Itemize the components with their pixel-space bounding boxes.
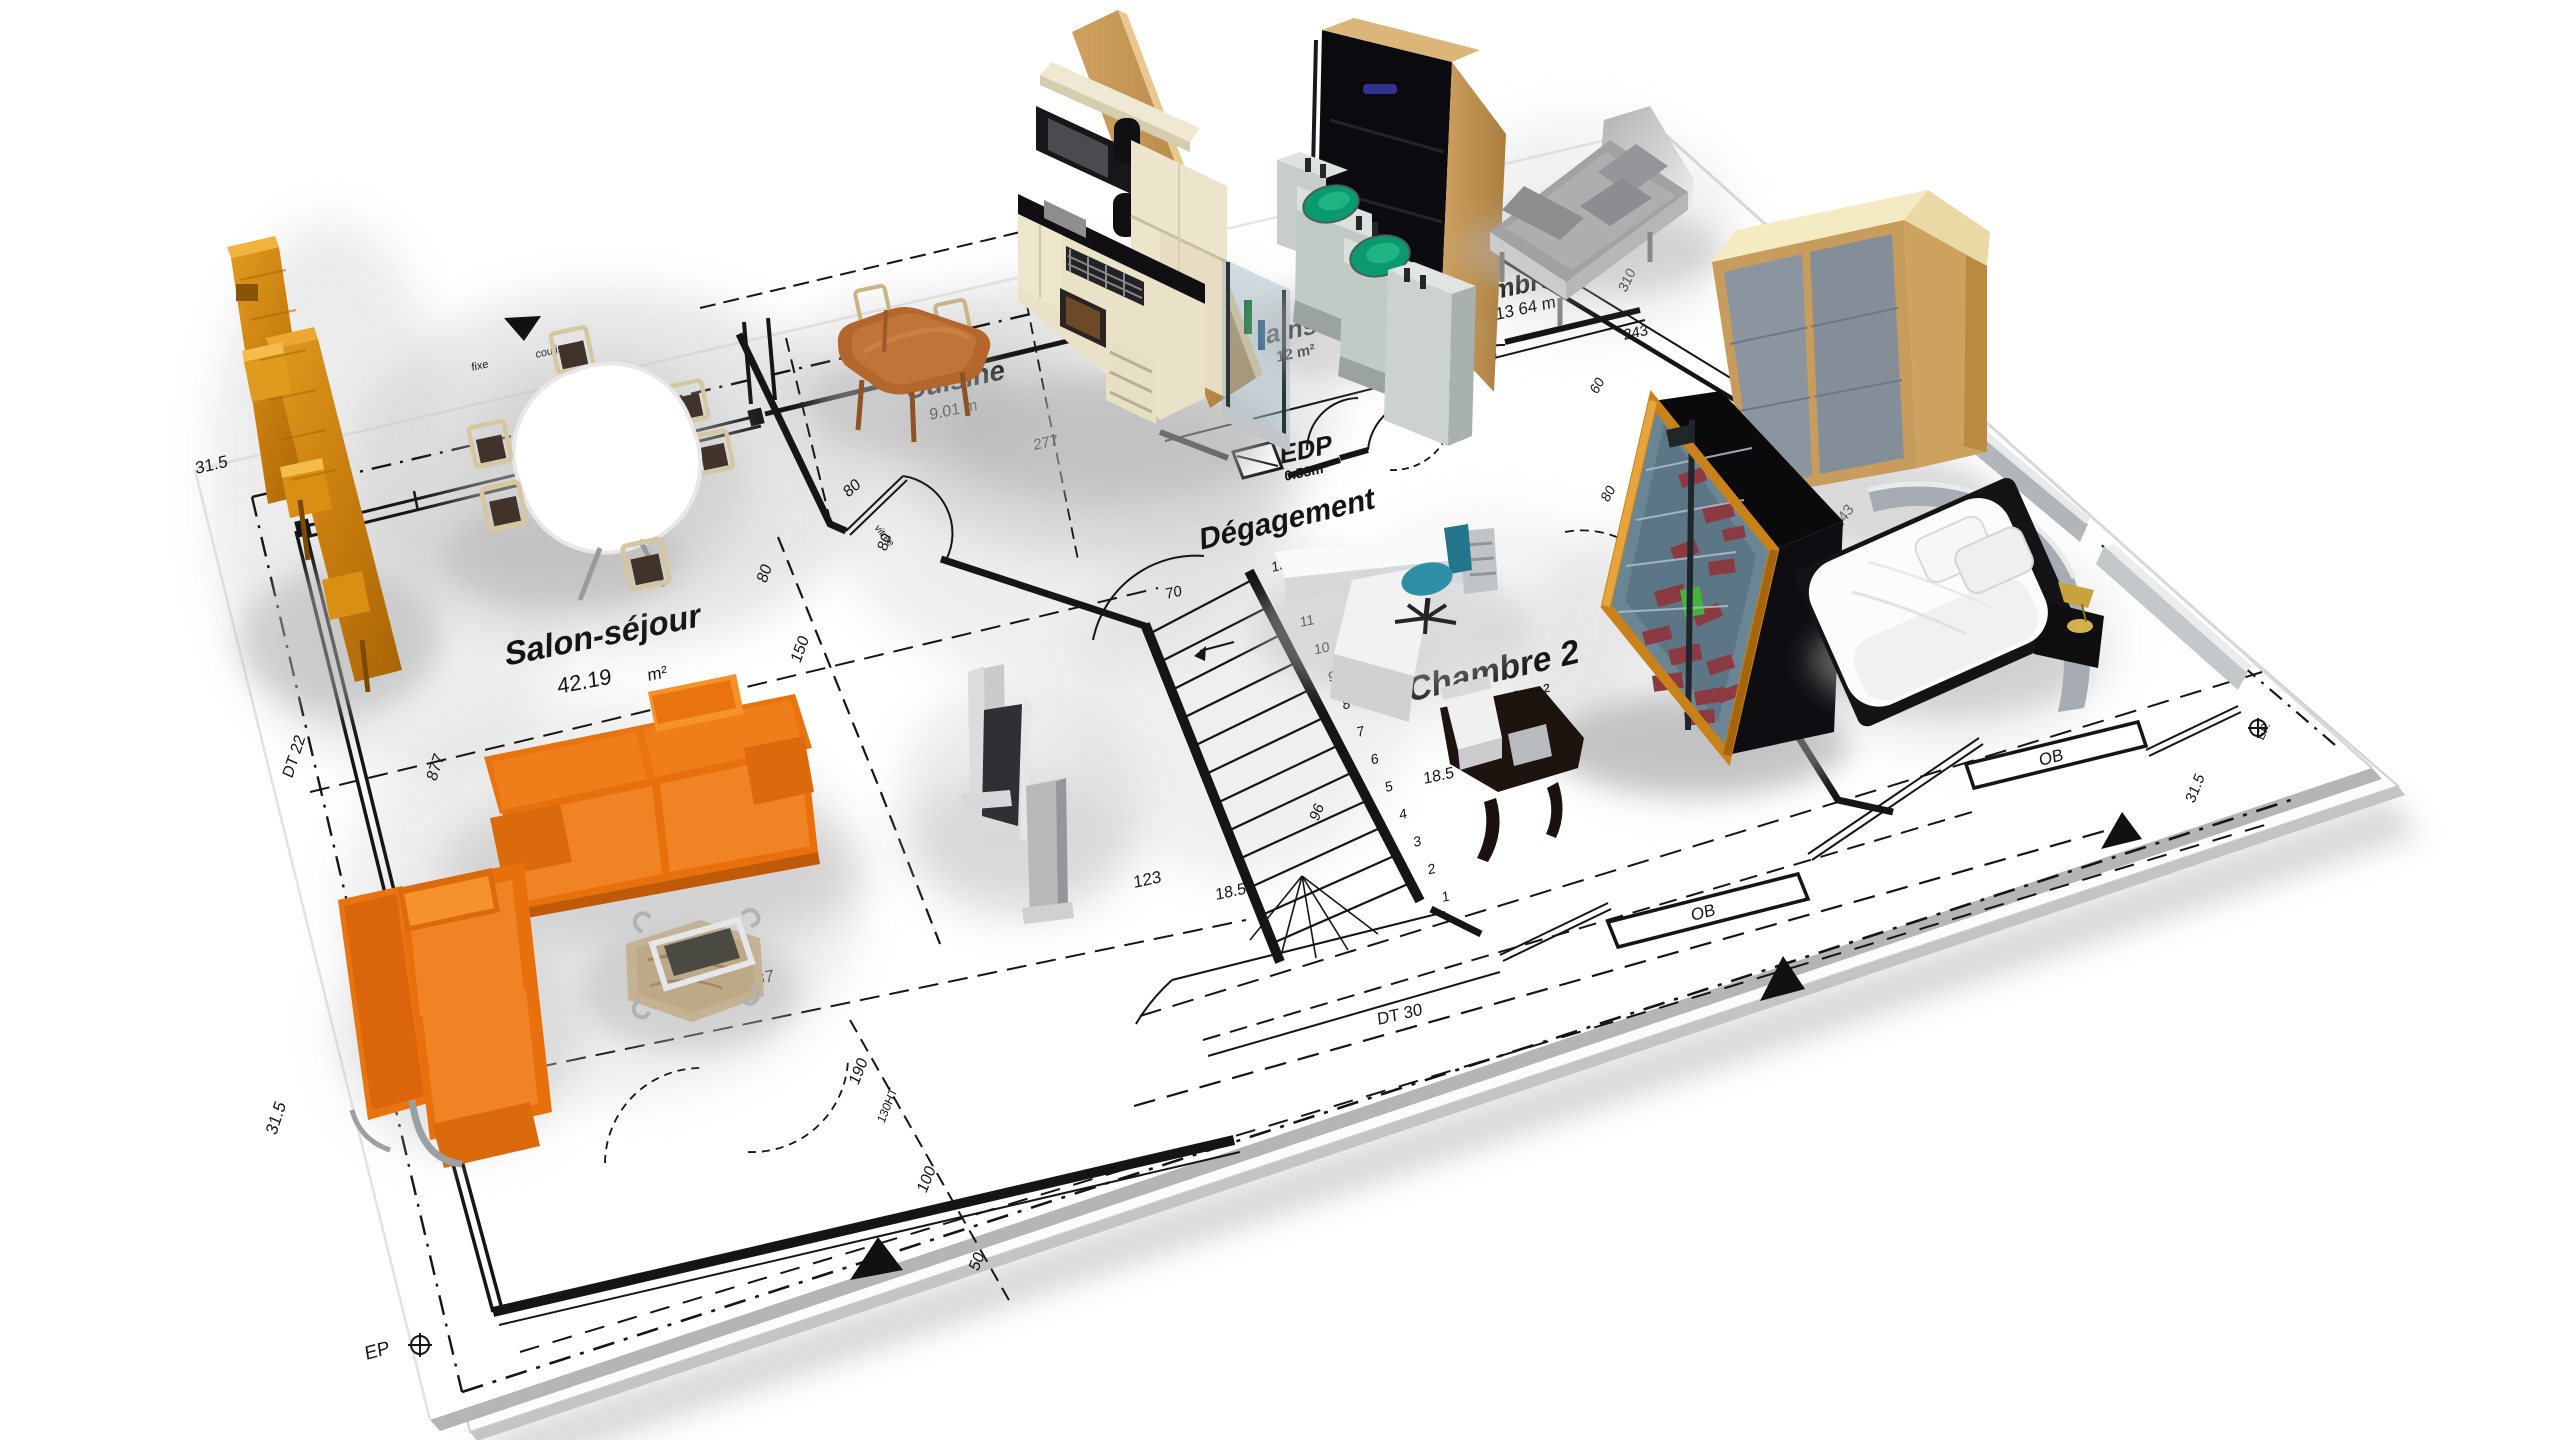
svg-text:m²: m² — [647, 662, 668, 685]
svg-text:70: 70 — [1165, 583, 1183, 603]
